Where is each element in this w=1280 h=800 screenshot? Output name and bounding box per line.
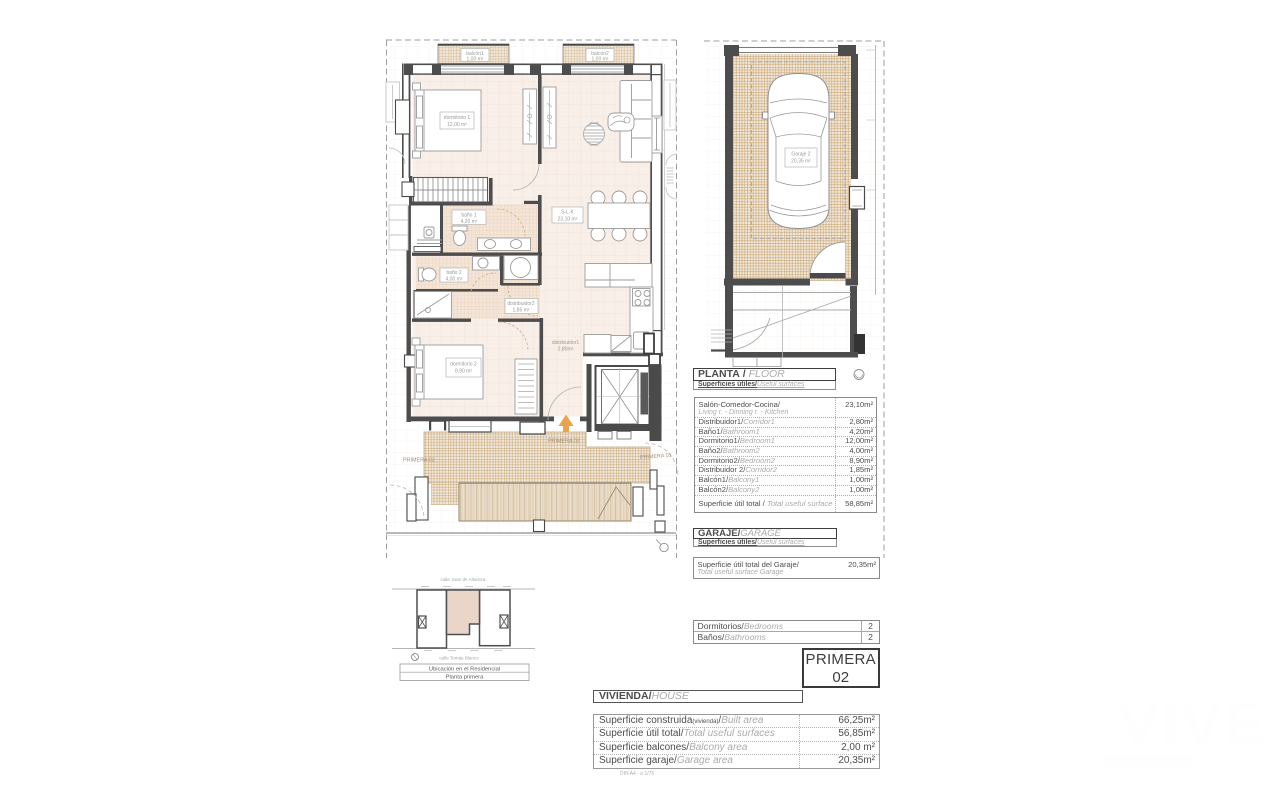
- svg-text:12,00 m²: 12,00 m²: [447, 122, 467, 128]
- svg-text:S-L-K: S-L-K: [561, 210, 574, 216]
- svg-text:4,00 m²: 4,00 m²: [446, 277, 463, 283]
- svg-text:calle Juan de Altamira: calle Juan de Altamira: [441, 577, 486, 582]
- svg-text:dormitorio 2: dormitorio 2: [450, 362, 477, 368]
- svg-text:2,80m²: 2,80m²: [558, 347, 574, 353]
- svg-text:23,10 m²: 23,10 m²: [558, 217, 578, 223]
- svg-text:DIN A4 - e:1/75: DIN A4 - e:1/75: [620, 771, 654, 777]
- svg-text:Garaje 2: Garaje 2: [791, 152, 810, 158]
- svg-text:Planta primera: Planta primera: [446, 675, 484, 681]
- svg-text:4,20 m²: 4,20 m²: [461, 219, 478, 225]
- svg-text:baño 2: baño 2: [446, 270, 462, 276]
- svg-text:Ubicación en el Residencial: Ubicación en el Residencial: [429, 667, 500, 673]
- svg-text:calle Tomás Blanco: calle Tomás Blanco: [439, 656, 479, 661]
- svg-text:1,00 m²: 1,00 m²: [592, 57, 609, 63]
- svg-text:8,90 m²: 8,90 m²: [455, 369, 472, 375]
- svg-text:dormitorio 1: dormitorio 1: [444, 115, 471, 121]
- svg-text:PRIMERA 02: PRIMERA 02: [548, 439, 580, 445]
- svg-text:VIVE: VIVE: [1118, 690, 1267, 759]
- svg-text:1,00 m²: 1,00 m²: [467, 57, 484, 63]
- svg-text:distribuidor1: distribuidor1: [552, 340, 579, 346]
- svg-text:distribuidor2: distribuidor2: [507, 301, 534, 307]
- svg-text:20,35 m²: 20,35 m²: [791, 159, 811, 165]
- svg-text:1,85 m²: 1,85 m²: [513, 308, 530, 314]
- svg-text:PRIMERA 03: PRIMERA 03: [403, 458, 435, 464]
- svg-text:baño 1: baño 1: [461, 213, 477, 219]
